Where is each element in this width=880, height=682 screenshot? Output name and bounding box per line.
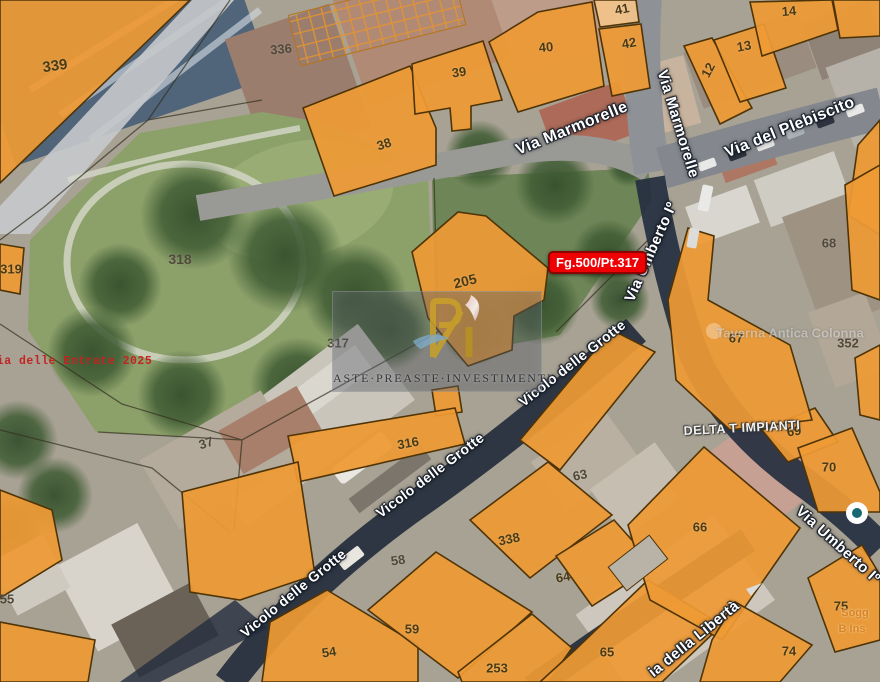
parcel-label: 63: [571, 466, 588, 484]
parcel-label: 68: [822, 236, 836, 251]
parcel-label: 339: [41, 56, 68, 76]
parcel-label: 253: [486, 661, 508, 676]
street-label: Vicolo delle Grotte: [237, 546, 349, 641]
parcel-label: 336: [270, 41, 293, 58]
poi-label-business[interactable]: DELTA T IMPIANTI: [683, 418, 800, 438]
parcel-label: 74: [782, 644, 796, 659]
street-label: Via Umberto Iº: [792, 503, 880, 588]
street-label: Via Marmorelle: [513, 98, 630, 159]
parcel-label: 13: [736, 37, 753, 54]
street-label: Via Marmorelle: [653, 68, 702, 180]
agency-logo-icon: [411, 293, 507, 365]
parcel-label: 319: [0, 262, 22, 277]
parcel-label: 14: [781, 3, 797, 19]
parcel-label: 41: [613, 0, 630, 18]
parcel-label: 39: [451, 64, 467, 81]
parcel-label: 65: [600, 645, 614, 660]
agency-watermark: ASTE·PREASTE·INVESTIMENTI: [332, 291, 542, 392]
poi-label-lodging[interactable]: Sogg: [841, 607, 869, 619]
parcel-label: 37: [197, 434, 215, 453]
labels-layer: 339 336 38 39 40 41 42 12 13 14 318 319 …: [0, 0, 880, 682]
street-label: Via del Plebiscito: [722, 94, 857, 163]
cadastral-reference-badge: Fg.500/Pt.317: [548, 251, 647, 274]
parcel-label: 59: [405, 622, 419, 637]
parcel-label: 316: [396, 434, 420, 453]
poi-label-restaurant[interactable]: Taverna Antica Colonna: [716, 326, 863, 341]
poi-label-lodging[interactable]: B Ins: [839, 623, 866, 635]
map-canvas[interactable]: 339 336 38 39 40 41 42 12 13 14 318 319 …: [0, 0, 880, 682]
parcel-label: 58: [390, 552, 406, 569]
parcel-label: 70: [822, 460, 836, 475]
cadastral-source-note: nzia delle Entrate 2025: [0, 355, 152, 368]
parcel-label: 54: [321, 644, 337, 661]
parcel-label: 38: [375, 135, 393, 154]
parcel-label: 318: [168, 251, 191, 267]
street-label: Vicolo delle Grotte: [373, 429, 487, 521]
parcel-label: 42: [621, 34, 638, 51]
parcel-label: 338: [497, 529, 521, 548]
street-label: ia della Libertà: [645, 597, 742, 680]
parcel-label: 55: [0, 592, 14, 607]
parcel-label: 205: [452, 270, 479, 291]
parcel-label: 66: [693, 520, 707, 535]
agency-brand-text: ASTE·PREASTE·INVESTIMENTI: [333, 371, 541, 386]
parcel-label: 64: [555, 568, 572, 585]
parcel-label: 12: [698, 60, 718, 80]
parcel-label: 40: [538, 39, 554, 55]
